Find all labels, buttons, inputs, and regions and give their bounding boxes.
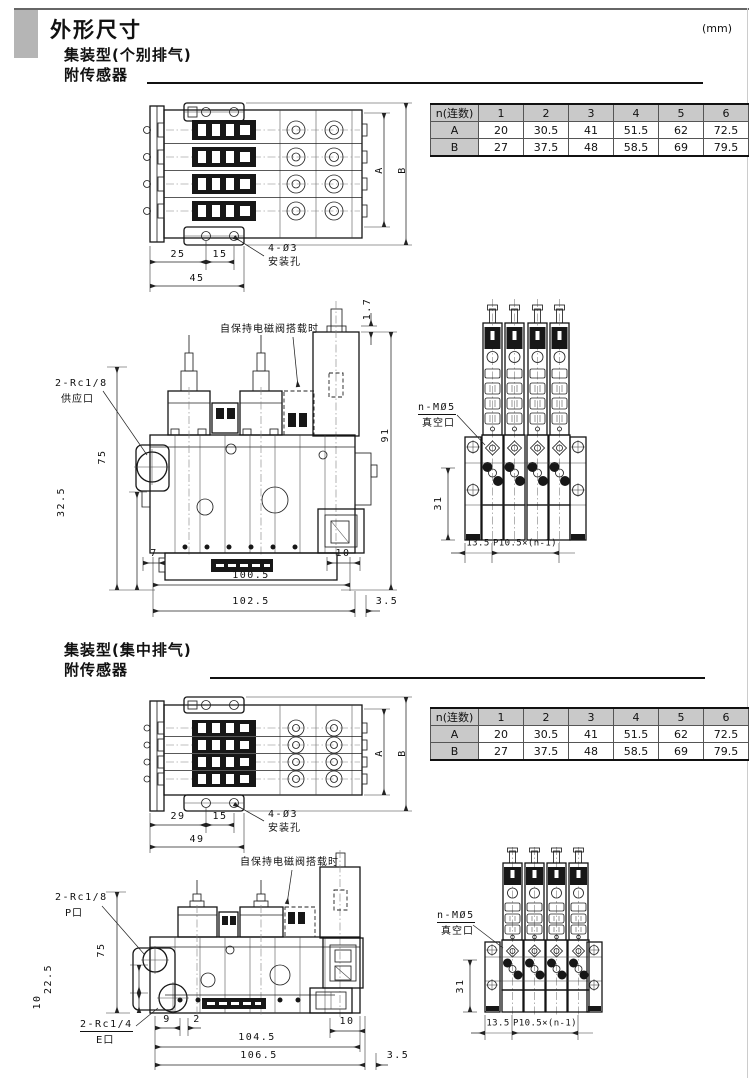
dim-15: 15 [212, 250, 227, 260]
dim-106.5: 106.5 [240, 1051, 278, 1061]
section1-rule [147, 82, 703, 84]
dim-22.5: 22.5 [44, 964, 54, 994]
dim-A: A [375, 166, 385, 174]
top-view-drawing-2: A B 29 15 49 4-Ø3 安装孔 [140, 693, 440, 863]
dim-9: 9 [163, 1015, 171, 1025]
vacuum-port-thread-label: n-MØ5 [437, 911, 475, 923]
table-cell: 51.5 [614, 122, 659, 139]
dim-15: 15 [212, 812, 227, 822]
table-cell: 30.5 [524, 122, 569, 139]
table-row: B 27 37.5 48 58.5 69 79.5 [431, 139, 749, 157]
dim-10-right: 10 [339, 1017, 354, 1027]
dim-B: B [398, 166, 408, 174]
vacuum-port-thread-label: n-MØ5 [418, 403, 456, 415]
dim-10-left: 10 [33, 994, 43, 1009]
table-cell: 72.5 [704, 726, 749, 743]
table-header-cell: 5 [659, 708, 704, 726]
page-title: 外形尺寸 [50, 14, 142, 44]
dim-75: 75 [97, 942, 107, 957]
table-row: A 20 30.5 41 51.5 62 72.5 [431, 726, 749, 743]
dimension-table-1: n(连数) 1 2 3 4 5 6 A 20 30.5 41 51.5 62 7… [430, 103, 749, 157]
table-cell: 72.5 [704, 122, 749, 139]
catalog-page: 外形尺寸 (mm) 集装型(个别排气) 附传感器 n(连数) 1 2 3 4 5… [0, 0, 749, 1081]
dim-31: 31 [434, 495, 444, 510]
p-port-thread-label: 2-Rc1/8 [55, 893, 108, 903]
dim-49: 49 [189, 835, 204, 845]
top-view-drawing-1: A B 25 15 45 4-Ø3 安装孔 [140, 98, 440, 298]
section2-rule [210, 677, 705, 679]
latching-valve-note: 自保持电磁阀搭载时 [240, 858, 339, 868]
table-cell: 41 [569, 122, 614, 139]
table-cell: 58.5 [614, 139, 659, 157]
section2-heading-line2: 附传感器 [64, 659, 128, 680]
table-header-cell: 2 [524, 708, 569, 726]
dim-B: B [398, 749, 408, 757]
table-cell: 41 [569, 726, 614, 743]
page-edge-line [747, 8, 748, 1078]
table-cell: 62 [659, 122, 704, 139]
table-row: B 27 37.5 48 58.5 69 79.5 [431, 743, 749, 761]
supply-port-name: 供应口 [61, 395, 94, 405]
side-view-drawing-2: n-MØ5 真空口 31 13.5 P10.5×(n-1) [425, 845, 705, 1081]
dim-91: 91 [381, 427, 391, 442]
table-cell: 20 [479, 122, 524, 139]
dim-13.5: 13.5 [466, 540, 489, 549]
dim-102.5: 102.5 [232, 597, 270, 607]
dim-100.5: 100.5 [232, 571, 270, 581]
dim-3.5: 3.5 [387, 1051, 410, 1061]
side-view-drawing-1: n-MØ5 真空口 31 13.5 P10.5×(n-1) [415, 295, 695, 590]
table-header-row: n(连数) 1 2 3 4 5 6 [431, 708, 749, 726]
table-row: A 20 30.5 41 51.5 62 72.5 [431, 122, 749, 139]
supply-port-thread-label: 2-Rc1/8 [55, 379, 108, 389]
section-bullet-square [14, 10, 38, 58]
table-cell: 62 [659, 726, 704, 743]
table-header-cell: 4 [614, 708, 659, 726]
mounting-hole-name: 安装孔 [268, 258, 301, 268]
mounting-hole-name: 安装孔 [268, 824, 301, 834]
dim-31: 31 [456, 978, 466, 993]
table-header-cell: 2 [524, 104, 569, 122]
table-header-cell: 6 [704, 708, 749, 726]
table-header-cell: 6 [704, 104, 749, 122]
dim-10: 10 [335, 549, 350, 559]
section1-heading-line1: 集装型(个别排气) [64, 44, 192, 65]
unit-label: (mm) [702, 22, 732, 35]
e-port-name: E口 [96, 1036, 114, 1046]
table-header-cell: 4 [614, 104, 659, 122]
vacuum-port-name: 真空口 [422, 419, 455, 429]
dim-pitch: P10.5×(n-1) [493, 540, 557, 549]
table-cell: 58.5 [614, 743, 659, 761]
table-cell: 37.5 [524, 139, 569, 157]
dim-2: 2 [193, 1015, 201, 1025]
dim-3.5: 3.5 [376, 597, 399, 607]
table-header-cell: 1 [479, 708, 524, 726]
dim-pitch: P10.5×(n-1) [513, 1020, 577, 1029]
table-cell: 27 [479, 139, 524, 157]
mounting-hole-label: 4-Ø3 [268, 810, 298, 820]
table-cell: 69 [659, 743, 704, 761]
table-header-cell: 1 [479, 104, 524, 122]
table-header-cell: 3 [569, 708, 614, 726]
table-cell: 27 [479, 743, 524, 761]
dimension-table-2: n(连数) 1 2 3 4 5 6 A 20 30.5 41 51.5 62 7… [430, 707, 749, 761]
dim-32.5: 32.5 [57, 487, 67, 517]
table-cell: 51.5 [614, 726, 659, 743]
table-cell: 37.5 [524, 743, 569, 761]
section1-heading-line2: 附传感器 [64, 64, 128, 85]
table-cell: 79.5 [704, 743, 749, 761]
latching-valve-note: 自保持电磁阀搭载时 [220, 325, 319, 335]
dim-104.5: 104.5 [238, 1033, 276, 1043]
e-port-thread-label: 2-Rc1/4 [80, 1020, 133, 1032]
table-cell: 48 [569, 743, 614, 761]
table-cell: 20 [479, 726, 524, 743]
table-cell: 30.5 [524, 726, 569, 743]
front-view-drawing-2: 2-Rc1/8 P口 自保持电磁阀搭载时 2-Rc1/4 E口 75 22.5 … [30, 850, 425, 1081]
dim-29: 29 [170, 812, 185, 822]
dim-1.7: 1.7 [363, 298, 373, 321]
table-header-cell: 3 [569, 104, 614, 122]
table-header-row: n(连数) 1 2 3 4 5 6 [431, 104, 749, 122]
table-cell: 79.5 [704, 139, 749, 157]
table-cell: 69 [659, 139, 704, 157]
front-view-drawing-1: 2-Rc1/8 供应口 自保持电磁阀搭载时 1.7 91 75 32.5 7 1… [35, 295, 410, 630]
table-cell: 48 [569, 139, 614, 157]
dim-13.5: 13.5 [486, 1020, 509, 1029]
section2-heading-line1: 集装型(集中排气) [64, 639, 192, 660]
top-rule [14, 8, 749, 10]
mounting-hole-label: 4-Ø3 [268, 244, 298, 254]
dim-45: 45 [189, 274, 204, 284]
dim-A: A [375, 749, 385, 757]
dim-25: 25 [170, 250, 185, 260]
p-port-name: P口 [65, 909, 83, 919]
table-header-cell: 5 [659, 104, 704, 122]
dim-75: 75 [98, 449, 108, 464]
dim-7: 7 [150, 549, 158, 559]
vacuum-port-name: 真空口 [441, 927, 474, 937]
